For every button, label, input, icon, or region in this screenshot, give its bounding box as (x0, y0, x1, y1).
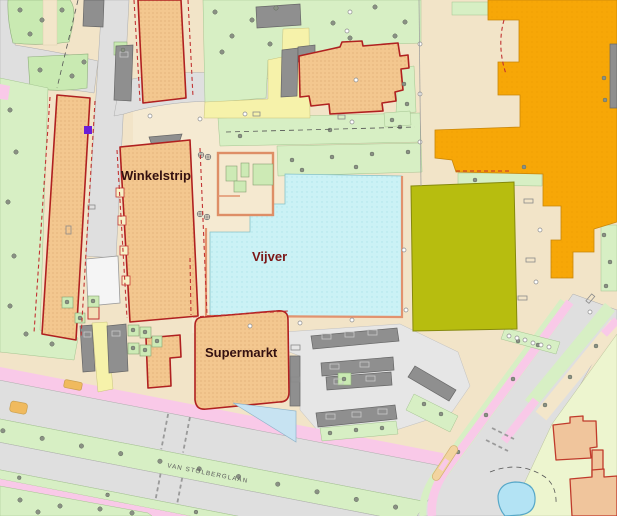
supermarkt-label: Supermarkt (205, 345, 278, 360)
vijver-label: Vijver (252, 249, 287, 264)
supermarkt-building (195, 311, 289, 409)
edge-building-sliver (610, 44, 617, 108)
apartment-block-north (138, 0, 186, 103)
map-canvas[interactable]: VAN STOLBERGLAAN (0, 0, 617, 516)
small-pond (498, 482, 535, 516)
kiosk (88, 307, 99, 319)
pond-platform (218, 153, 273, 215)
topographic-map[interactable]: VAN STOLBERGLAAN (0, 0, 617, 516)
winkelstrip-label: Winkelstrip (121, 168, 191, 183)
sports-field (411, 182, 517, 331)
purple-marker (84, 126, 92, 134)
